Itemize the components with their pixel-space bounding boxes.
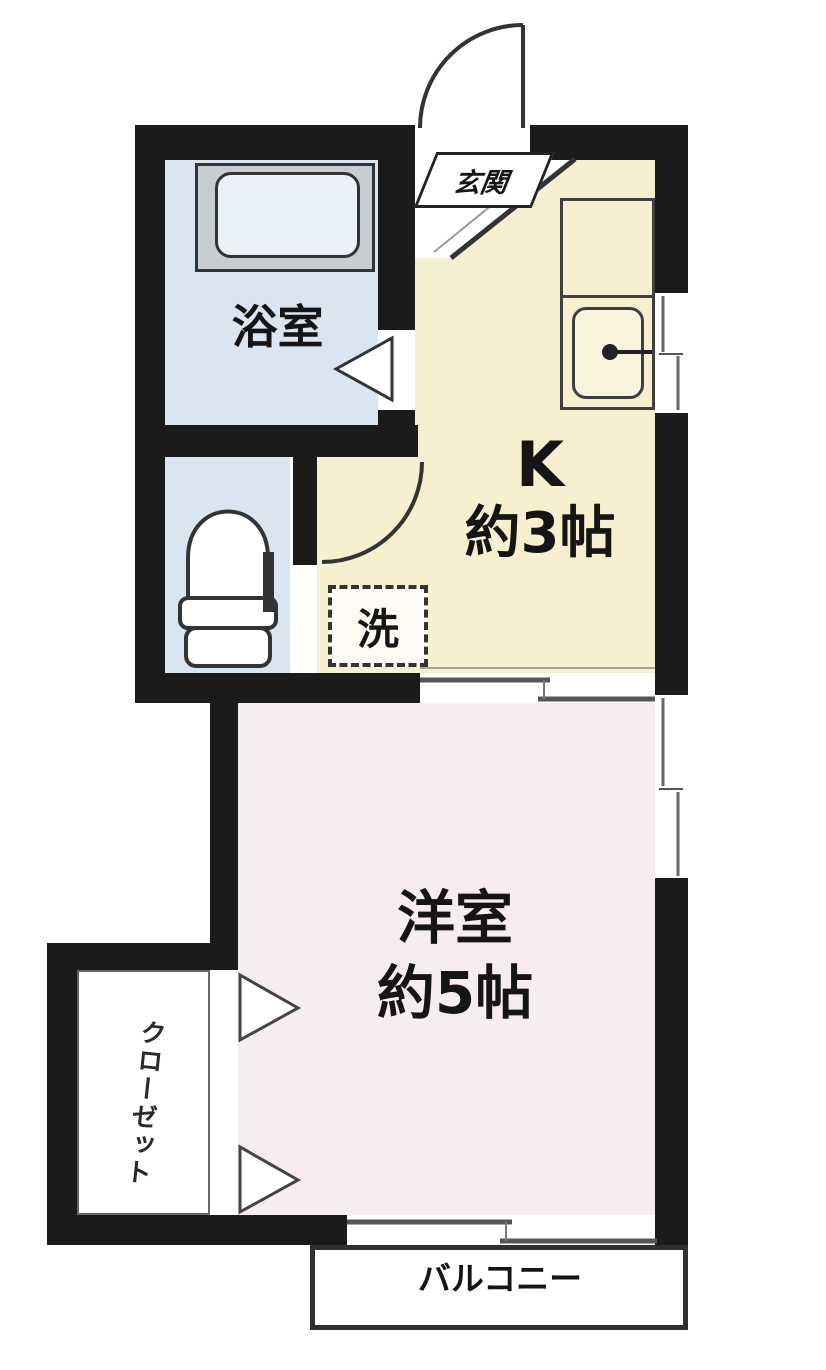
western-room-label: 洋室	[340, 888, 570, 949]
wall-right-1	[655, 125, 688, 293]
bathroom-door-gap	[378, 330, 415, 410]
wall-right-2	[655, 413, 688, 695]
entrance-label-box: 玄関	[414, 152, 555, 208]
wall-bottom	[47, 1215, 347, 1245]
wall-top-left	[135, 125, 415, 160]
wall-hall-bottom	[135, 673, 420, 703]
kitchen-sink-icon	[572, 307, 644, 399]
western-window-gap	[655, 695, 688, 878]
entrance-label: 玄関	[449, 161, 519, 200]
wall-western-left	[210, 700, 238, 970]
wall-right-3	[655, 878, 688, 1245]
kitchen-window-gap	[655, 293, 688, 413]
kitchen-label: K	[460, 432, 620, 497]
western-room-size-label: 約5帖	[310, 963, 600, 1024]
wall-toilet-right	[293, 455, 317, 565]
wall-closet-left	[47, 943, 77, 1245]
kitchen-size-label: 約3帖	[425, 505, 655, 564]
laundry-space: 洗	[328, 585, 428, 667]
floorplan-canvas: 洗	[0, 0, 826, 1370]
wall-bathroom-bottom	[135, 425, 418, 457]
laundry-label: 洗	[357, 596, 399, 657]
wall-left-upper	[135, 125, 165, 700]
kitchen-counter	[560, 198, 655, 298]
entrance-door-arc-icon	[420, 25, 523, 128]
wall-bathroom-right-upper	[378, 160, 415, 335]
toilet-room-floor	[165, 455, 290, 673]
bathtub-icon	[215, 172, 360, 258]
bathroom-label: 浴室	[195, 303, 360, 351]
balcony-label: バルコニー	[370, 1262, 630, 1297]
